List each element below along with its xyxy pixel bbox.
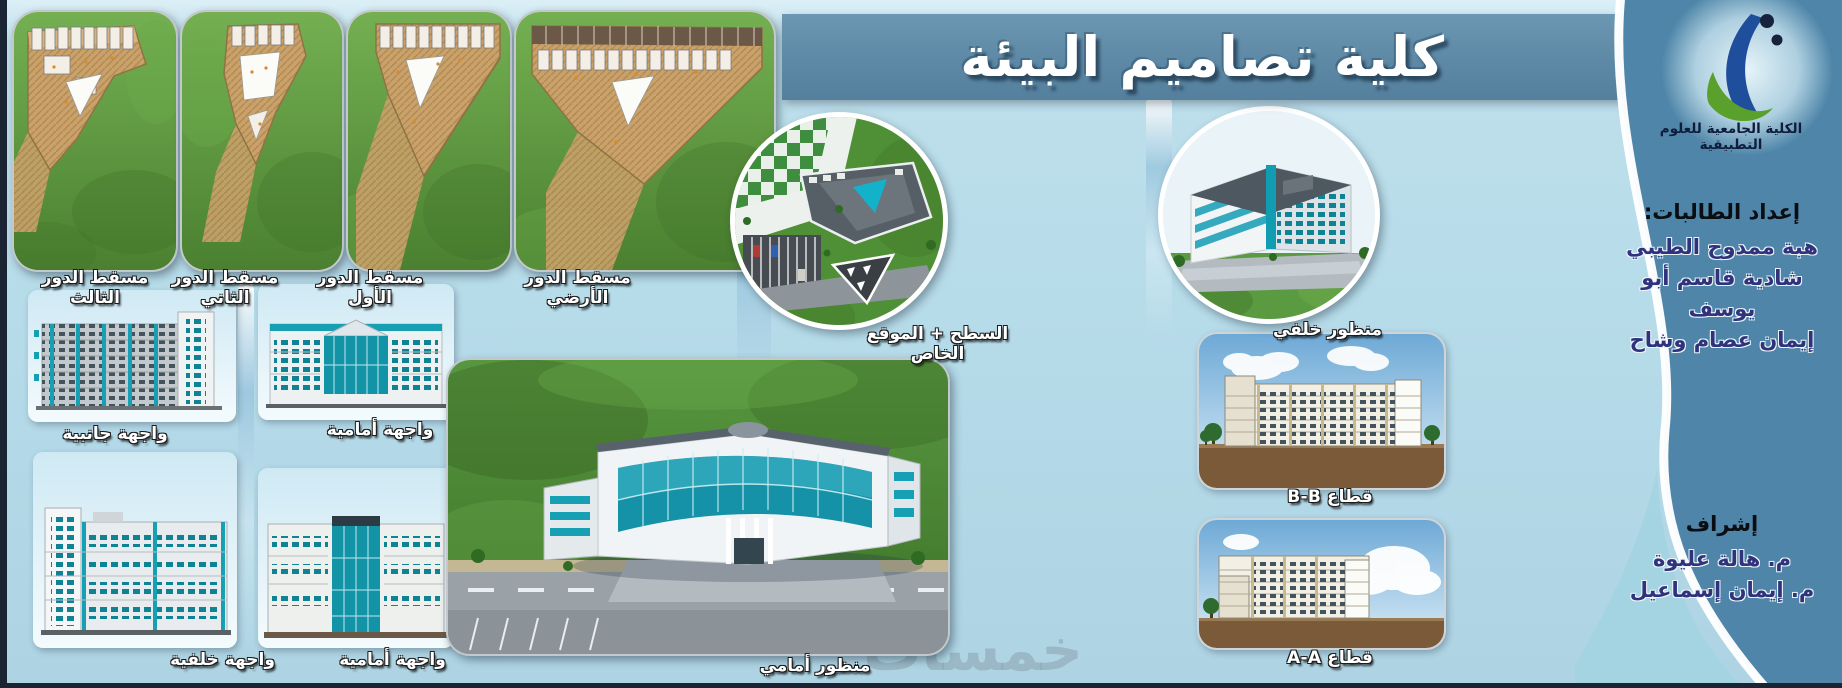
back-perspective-label: منظور خلفي xyxy=(1235,320,1420,340)
elevation-label: واجهة خلفية xyxy=(140,650,305,670)
roof-site-plan-view xyxy=(730,112,948,330)
students-block: إعداد الطالبات: هبة ممدوح الطيبي شادية ق… xyxy=(1612,200,1832,356)
side-elevation-drawing xyxy=(28,290,236,422)
student-name: شادية قاسم أبو يوسف xyxy=(1612,263,1832,325)
section-label: قطاع B-B xyxy=(1240,487,1420,507)
students-heading: إعداد الطالبات: xyxy=(1612,200,1832,224)
floor-plan-label: مسقط الدور الأرضي xyxy=(495,268,660,308)
college-logo-caption: الكلية الجامعية للعلوم التطبيقية xyxy=(1638,121,1824,153)
back-perspective-view xyxy=(1158,106,1380,324)
roof-site-plan-drawing xyxy=(735,117,943,325)
section-bb-drawing xyxy=(1199,334,1444,488)
supervision-heading: إشراف xyxy=(1612,512,1832,536)
front-perspective-label: منظور أمامي xyxy=(720,656,910,676)
floor-plan-drawing xyxy=(348,12,510,270)
student-name: هبة ممدوح الطيبي xyxy=(1612,232,1832,263)
front-elevation-drawing xyxy=(258,468,454,648)
elevation-label: واجهة أمامية xyxy=(300,420,460,440)
section-bb-view xyxy=(1197,332,1446,490)
supervisor-name: م. إيمان إسماعيل xyxy=(1612,575,1832,606)
supervisor-name: م. هالة عليوة xyxy=(1612,544,1832,575)
presentation-board: كلية تصاميم البيئة xyxy=(0,0,1842,688)
floor-plan-drawing xyxy=(182,12,342,270)
front-elevation-view-bottom xyxy=(258,468,454,648)
back-perspective-drawing xyxy=(1163,111,1375,319)
student-name: إيمان عصام وشاح xyxy=(1612,325,1832,356)
supervision-block: إشراف م. هالة عليوة م. إيمان إسماعيل xyxy=(1612,512,1832,606)
side-elevation-view xyxy=(28,290,236,422)
page-title: كلية تصاميم البيئة xyxy=(782,14,1622,100)
floor-plan-third-floor xyxy=(12,10,178,272)
board-left-edge xyxy=(0,0,7,688)
board-bottom-edge xyxy=(0,683,1842,688)
front-perspective-render xyxy=(446,358,950,656)
roof-site-plan-label: السطح + الموقع الخاص xyxy=(845,324,1030,364)
back-elevation-drawing xyxy=(33,452,237,648)
section-aa-view xyxy=(1197,518,1446,650)
light-strip-divider xyxy=(238,282,254,650)
floor-plan-label: مسقط الدور الأول xyxy=(295,268,445,308)
section-label: قطاع A-A xyxy=(1240,648,1420,668)
elevation-label: واجهة أمامية xyxy=(310,650,475,670)
floor-plan-drawing xyxy=(14,12,176,270)
floor-plan-label: مسقط الدور الثالث xyxy=(20,268,170,308)
title-banner: كلية تصاميم البيئة xyxy=(782,14,1622,100)
floor-plan-first-floor xyxy=(346,10,512,272)
section-aa-drawing xyxy=(1199,520,1444,648)
front-perspective-drawing xyxy=(448,360,948,654)
back-elevation-view xyxy=(33,452,237,648)
floor-plan-second-floor xyxy=(180,10,344,272)
elevation-label: واجهة جانبية xyxy=(35,424,195,444)
floor-plan-label: مسقط الدور الثاني xyxy=(150,268,300,308)
